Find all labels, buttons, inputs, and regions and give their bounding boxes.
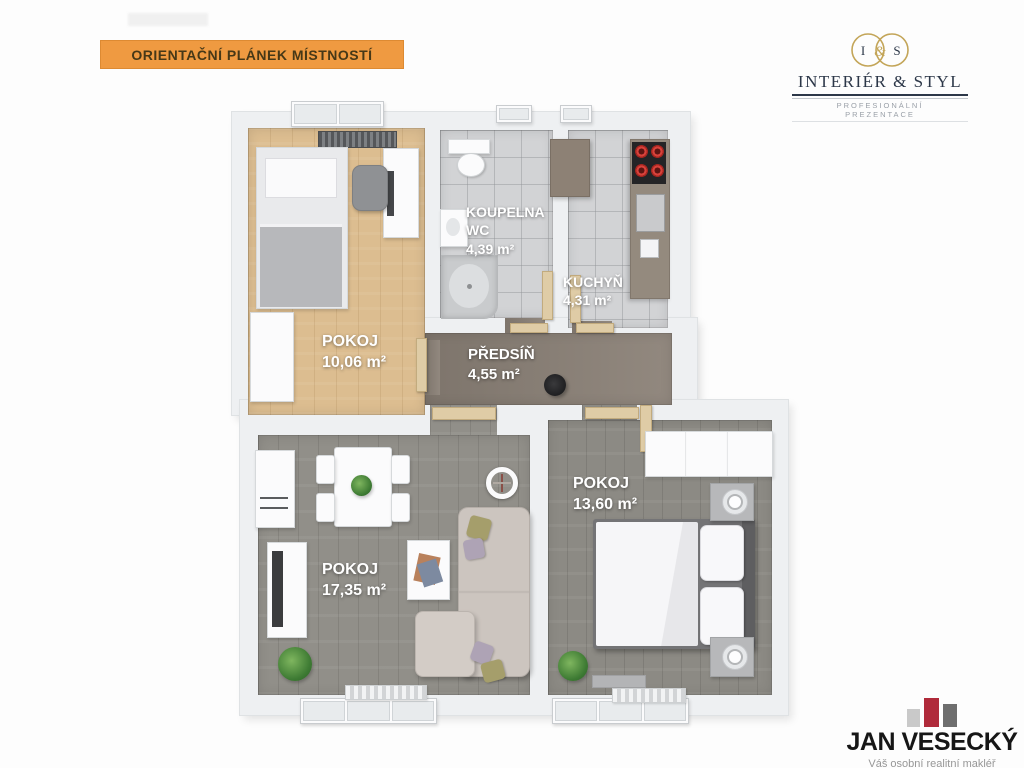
brand-tagline: PROFESIONÁLNÍ PREZENTACE: [792, 98, 968, 122]
monitor: [387, 171, 394, 216]
door-pokoj-left: [432, 407, 496, 420]
bedside-lamp: [722, 644, 748, 670]
bed-blanket: [260, 224, 342, 307]
room-name: KOUPELNA: [466, 203, 545, 221]
toilet-cistern: [448, 139, 490, 154]
desk: [383, 148, 419, 238]
bedside-lamp: [722, 489, 748, 515]
bookshelf: [255, 450, 295, 528]
table-plant: [351, 475, 372, 496]
tv: [272, 551, 283, 627]
dining-chair: [391, 493, 410, 522]
room-label-pokoj-right: POKOJ 13,60 m²: [573, 473, 637, 515]
window-top-left: [291, 101, 384, 127]
bed-pillow: [700, 525, 744, 581]
radiator: [345, 685, 427, 700]
room-area: 4,55 m²: [468, 365, 535, 385]
sink-basin: [446, 218, 460, 236]
room-name: POKOJ: [322, 331, 386, 352]
door-sill-kuchyn: [576, 323, 614, 333]
room-name: POKOJ: [322, 559, 386, 580]
dining-chair: [316, 493, 335, 522]
agent-logo: JAN VESECKÝ Váš osobní realitní makléř: [840, 697, 1024, 768]
monogram-amp: &: [874, 44, 886, 60]
single-bed: [256, 147, 348, 309]
agent-tagline: Váš osobní realitní makléř: [840, 758, 1024, 768]
room-name: POKOJ: [573, 473, 637, 494]
desk-chair: [352, 165, 388, 211]
kitchen-counter: [630, 139, 670, 299]
doorway-pokoj-top: [425, 340, 440, 395]
doormat: [592, 675, 646, 688]
bathroom-sink: [440, 209, 468, 247]
room-area: 13,60 m²: [573, 494, 637, 515]
double-bed: [593, 519, 755, 649]
kitchen-cabinet: [550, 139, 590, 197]
sofa-chaise: [415, 611, 475, 677]
tv-stand: [267, 542, 307, 638]
clock-hand: [493, 482, 511, 484]
sofa-pillow-lavender: [462, 537, 485, 560]
shelf-line: [260, 497, 288, 499]
door-koupelna: [542, 271, 553, 320]
coffee-table: [407, 540, 450, 600]
floor-plant: [558, 651, 588, 681]
room-label-koupelna: KOUPELNA WC 4,39 m²: [466, 203, 545, 258]
wardrobe-large: [645, 431, 773, 477]
cooktop: [632, 142, 666, 184]
wall-clock: [486, 467, 518, 499]
floor-plant: [278, 647, 312, 681]
hall-stool: [544, 374, 566, 396]
page-title-banner: ORIENTAČNÍ PLÁNEK MÍSTNOSTÍ: [100, 40, 404, 69]
window-koupelna: [496, 105, 532, 123]
watermark-ghost: [128, 13, 208, 26]
room-name: PŘEDSÍŇ: [468, 345, 535, 365]
monogram-s: S: [893, 43, 900, 58]
room-area: 4,31 m²: [563, 291, 623, 309]
is-monogram-icon: I & S: [832, 28, 928, 74]
room-label-predsin: PŘEDSÍŇ 4,55 m²: [468, 345, 535, 385]
monogram-i: I: [861, 43, 865, 58]
bar-gray: [907, 709, 920, 727]
room-area: 4,39 m²: [466, 240, 545, 258]
bed-pillow: [265, 158, 337, 198]
room-area: 17,35 m²: [322, 580, 386, 601]
room-name: KUCHYŇ: [563, 273, 623, 291]
room-label-pokoj-left: POKOJ 17,35 m²: [322, 559, 386, 601]
door-pokoj-top: [416, 338, 427, 392]
dining-chair: [391, 455, 410, 484]
door-lintel-pokoj-right: [585, 407, 639, 419]
toilet-bowl: [457, 153, 485, 177]
bar-red: [924, 698, 939, 727]
page: ORIENTAČNÍ PLÁNEK MÍSTNOSTÍ I & S INTERI…: [0, 0, 1024, 768]
window-bottom-left: [300, 698, 437, 724]
radiator-grille: [318, 131, 397, 148]
room-name: WC: [466, 221, 545, 239]
door-sill-koupelna: [510, 323, 548, 333]
shelf-line: [260, 507, 288, 509]
bed-duvet: [596, 522, 698, 646]
page-title: ORIENTAČNÍ PLÁNEK MÍSTNOSTÍ: [131, 47, 372, 63]
room-label-pokoj-top: POKOJ 10,06 m²: [322, 331, 386, 373]
bar-chart-icon: [840, 697, 1024, 727]
wardrobe-small: [250, 312, 294, 402]
bar-dark: [943, 704, 957, 727]
dining-chair: [316, 455, 335, 484]
brand-name: INTERIÉR & STYL: [792, 72, 968, 96]
interier-styl-logo: I & S INTERIÉR & STYL PROFESIONÁLNÍ PREZ…: [792, 28, 968, 122]
shower: [441, 255, 498, 319]
room-area: 10,06 m²: [322, 352, 386, 373]
floor-plan: POKOJ 10,06 m² KOUPELNA WC 4,39 m² KUCHY…: [230, 95, 790, 765]
kitchen-sink: [636, 194, 665, 232]
agent-name: JAN VESECKÝ: [840, 728, 1024, 757]
room-label-kuchyn: KUCHYŇ 4,31 m²: [563, 273, 623, 310]
radiator: [612, 688, 686, 703]
window-kuchyn: [560, 105, 592, 123]
shower-drain: [467, 284, 472, 289]
toaster: [640, 239, 659, 258]
